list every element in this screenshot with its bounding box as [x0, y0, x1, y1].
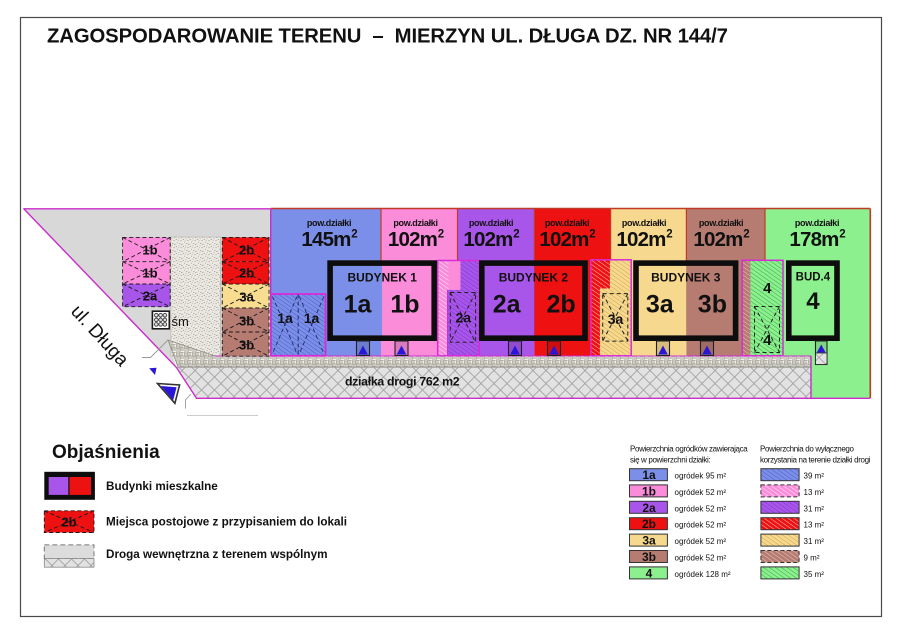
svg-text:pow.działki: pow.działki: [622, 218, 666, 228]
svg-text:ogródek 128 m²: ogródek 128 m²: [675, 570, 731, 579]
svg-text:2: 2: [589, 229, 595, 241]
svg-text:pow.działki: pow.działki: [795, 218, 839, 228]
svg-text:3a: 3a: [608, 311, 624, 327]
svg-text:31 m²: 31 m²: [804, 537, 825, 546]
svg-text:9 m²: 9 m²: [804, 554, 820, 563]
svg-text:3a: 3a: [646, 291, 675, 319]
svg-text:1a: 1a: [642, 468, 656, 482]
svg-text:2a: 2a: [493, 291, 522, 319]
svg-text:31 m²: 31 m²: [804, 504, 825, 513]
svg-text:4: 4: [646, 566, 653, 580]
svg-text:13 m²: 13 m²: [804, 488, 825, 497]
svg-text:2: 2: [839, 229, 845, 241]
svg-text:2a: 2a: [143, 288, 158, 303]
svg-text:1b: 1b: [142, 266, 157, 281]
svg-text:1a: 1a: [304, 310, 320, 326]
svg-text:2a: 2a: [642, 501, 656, 515]
svg-text:Droga wewnętrzna z terenem wsp: Droga wewnętrzna z terenem wspólnym: [106, 548, 327, 561]
svg-text:działka drogi 762 m2: działka drogi 762 m2: [345, 375, 460, 389]
svg-text:Budynki mieszkalne: Budynki mieszkalne: [106, 480, 218, 493]
svg-text:ogródek 52 m²: ogródek 52 m²: [675, 537, 727, 546]
svg-text:145m: 145m: [301, 228, 350, 251]
svg-text:3a: 3a: [239, 289, 254, 304]
svg-text:2b: 2b: [61, 515, 76, 530]
svg-text:2: 2: [666, 229, 672, 241]
svg-text:pow.działki: pow.działki: [393, 218, 437, 228]
svg-text:13 m²: 13 m²: [804, 521, 825, 530]
svg-text:3b: 3b: [698, 291, 727, 319]
svg-text:3b: 3b: [239, 313, 254, 328]
svg-text:1b: 1b: [142, 243, 157, 258]
svg-text:Powierzchnia do wyłącznego: Powierzchnia do wyłącznego: [760, 445, 855, 454]
svg-text:ogródek 52 m²: ogródek 52 m²: [675, 554, 727, 563]
svg-text:pow.działki: pow.działki: [469, 218, 513, 228]
svg-text:BUD.4: BUD.4: [796, 272, 831, 284]
svg-text:102m: 102m: [463, 228, 512, 251]
svg-text:2: 2: [513, 229, 519, 241]
svg-text:2a: 2a: [456, 310, 472, 326]
svg-text:pow.działki: pow.działki: [545, 218, 589, 228]
svg-text:178m: 178m: [789, 228, 838, 251]
svg-text:1b: 1b: [642, 484, 656, 498]
svg-text:4: 4: [763, 332, 772, 349]
svg-text:korzystania na terenie działki: korzystania na terenie działki drogi: [760, 456, 871, 465]
svg-text:BUDYNEK 3: BUDYNEK 3: [651, 271, 721, 285]
svg-text:BUDYNEK 2: BUDYNEK 2: [499, 271, 569, 285]
svg-text:2b: 2b: [642, 517, 656, 531]
svg-text:Objaśnienia: Objaśnienia: [52, 442, 160, 463]
svg-text:się w powierzchni działki:: się w powierzchni działki:: [630, 456, 710, 465]
svg-text:35 m²: 35 m²: [804, 570, 825, 579]
svg-text:3b: 3b: [239, 337, 254, 352]
svg-text:39 m²: 39 m²: [804, 472, 825, 481]
svg-text:1a: 1a: [344, 291, 373, 319]
svg-text:2b: 2b: [239, 243, 254, 258]
svg-text:Powierzchnia ogródków zawieraj: Powierzchnia ogródków zawierająca: [630, 445, 748, 454]
svg-text:102m: 102m: [388, 228, 437, 251]
svg-text:Miejsca postojowe z przypisani: Miejsca postojowe z przypisaniem do loka…: [106, 515, 347, 528]
svg-text:102m: 102m: [693, 228, 742, 251]
svg-text:śm: śm: [172, 314, 189, 329]
svg-text:ZAGOSPODAROWANIE TERENU – MI: ZAGOSPODAROWANIE TERENU – MIERZYN UL. DŁ…: [47, 26, 728, 48]
svg-text:2: 2: [438, 229, 444, 241]
svg-text:1a: 1a: [277, 310, 293, 326]
svg-text:2b: 2b: [547, 291, 576, 319]
svg-text:ogródek 52 m²: ogródek 52 m²: [675, 488, 727, 497]
svg-text:4: 4: [763, 280, 772, 297]
svg-text:2b: 2b: [239, 266, 254, 281]
svg-text:BUDYNEK 1: BUDYNEK 1: [348, 271, 418, 285]
svg-text:102m: 102m: [539, 228, 588, 251]
svg-text:2: 2: [743, 229, 749, 241]
svg-text:2: 2: [351, 229, 357, 241]
svg-text:102m: 102m: [616, 228, 665, 251]
svg-text:3b: 3b: [642, 550, 656, 564]
svg-text:pow.działki: pow.działki: [699, 218, 743, 228]
svg-text:4: 4: [806, 288, 820, 315]
svg-text:ogródek 95 m²: ogródek 95 m²: [675, 472, 727, 481]
svg-text:pow.działki: pow.działki: [307, 218, 351, 228]
svg-text:ogródek 52 m²: ogródek 52 m²: [675, 521, 727, 530]
svg-text:3a: 3a: [642, 534, 656, 548]
svg-text:ogródek 52 m²: ogródek 52 m²: [675, 504, 727, 513]
svg-text:1b: 1b: [390, 291, 419, 319]
